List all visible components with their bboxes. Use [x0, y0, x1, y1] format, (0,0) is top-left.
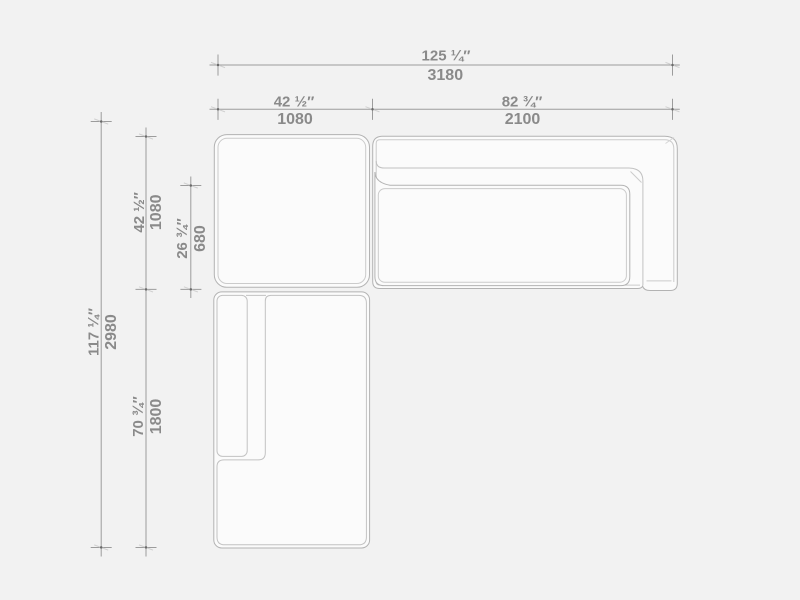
- svg-text:1080: 1080: [148, 194, 165, 230]
- svg-text:42 ½″: 42 ½″: [274, 93, 315, 110]
- svg-text:125 ¼″: 125 ¼″: [422, 47, 471, 64]
- svg-text:82 ¾″: 82 ¾″: [502, 93, 543, 110]
- svg-text:117 ¼″: 117 ¼″: [85, 308, 102, 356]
- svg-text:42 ½″: 42 ½″: [131, 192, 148, 233]
- svg-text:2100: 2100: [505, 111, 541, 128]
- svg-text:2980: 2980: [103, 314, 120, 350]
- svg-text:680: 680: [192, 225, 209, 252]
- svg-text:70 ¾″: 70 ¾″: [130, 396, 147, 437]
- svg-text:1800: 1800: [148, 399, 165, 435]
- svg-text:1080: 1080: [277, 111, 313, 128]
- svg-text:3180: 3180: [428, 67, 464, 84]
- svg-text:26 ¾″: 26 ¾″: [174, 218, 191, 259]
